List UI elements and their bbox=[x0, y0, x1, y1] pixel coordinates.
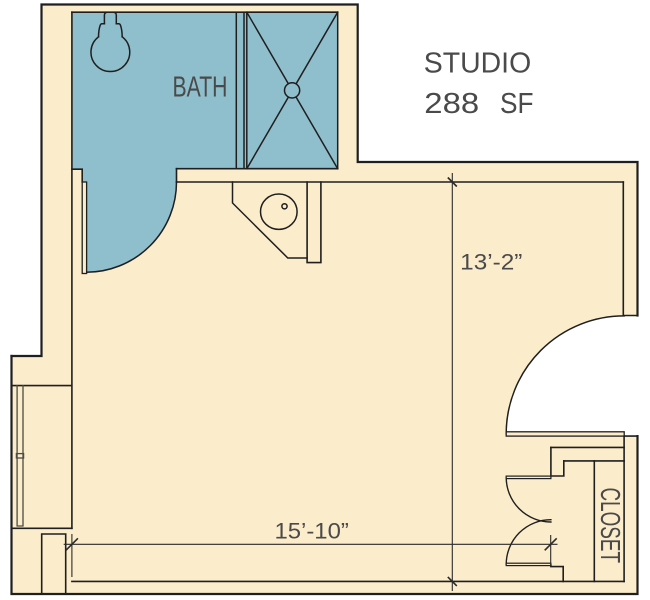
svg-text:CLOSET: CLOSET bbox=[595, 488, 626, 564]
svg-text:SF: SF bbox=[500, 88, 534, 120]
svg-text:BATH: BATH bbox=[173, 72, 228, 104]
svg-text:15’-10”: 15’-10” bbox=[275, 519, 349, 544]
svg-text:STUDIO: STUDIO bbox=[424, 48, 531, 80]
svg-text:288: 288 bbox=[424, 88, 479, 120]
svg-text:13’-2”: 13’-2” bbox=[460, 250, 522, 275]
